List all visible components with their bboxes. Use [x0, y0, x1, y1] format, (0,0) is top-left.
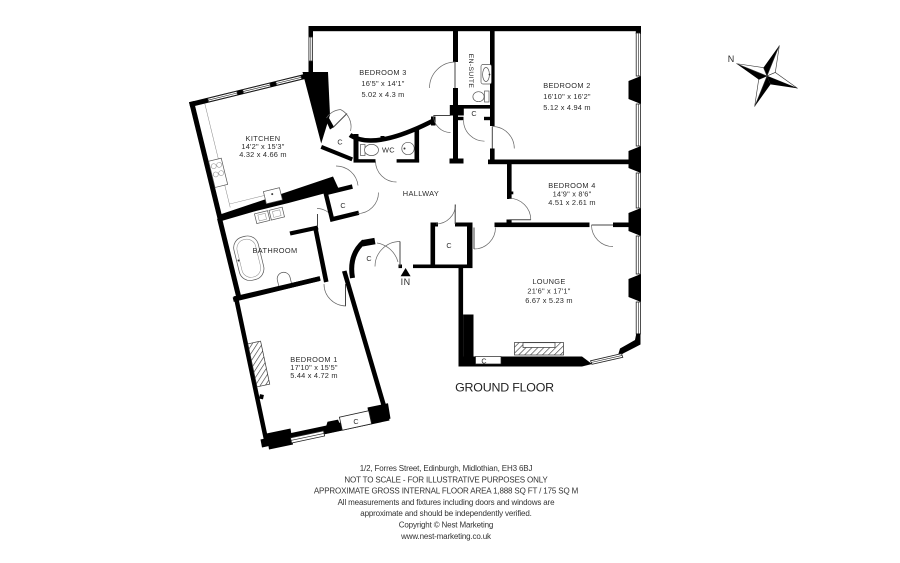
svg-text:www.nest-marketing.co.uk: www.nest-marketing.co.uk	[400, 532, 492, 541]
svg-text:WC: WC	[382, 146, 395, 155]
svg-text:NOT TO SCALE - FOR ILLUSTRATIV: NOT TO SCALE - FOR ILLUSTRATIVE PURPOSES…	[344, 476, 548, 485]
svg-text:EN-SUITE: EN-SUITE	[467, 54, 474, 89]
svg-text:C: C	[481, 357, 486, 366]
svg-text:5.02 x 4.3 m: 5.02 x 4.3 m	[361, 90, 404, 99]
svg-text:BEDROOM 3: BEDROOM 3	[359, 68, 407, 77]
svg-text:16'10" x 16'2": 16'10" x 16'2"	[543, 92, 591, 101]
svg-text:BEDROOM 2: BEDROOM 2	[543, 81, 591, 90]
svg-text:APPROXIMATE GROSS INTERNAL FLO: APPROXIMATE GROSS INTERNAL FLOOR AREA 1,…	[314, 487, 579, 496]
svg-text:C: C	[353, 417, 358, 426]
svg-text:C: C	[446, 241, 451, 250]
svg-text:BATHROOM: BATHROOM	[253, 246, 298, 255]
svg-text:LOUNGE: LOUNGE	[532, 277, 565, 286]
svg-text:5.44 x 4.72 m: 5.44 x 4.72 m	[290, 371, 337, 380]
svg-text:IN: IN	[401, 277, 411, 287]
svg-text:21'6" x 17'1": 21'6" x 17'1"	[527, 287, 570, 296]
svg-text:HALLWAY: HALLWAY	[403, 189, 439, 198]
svg-text:4.51 x 2.61 m: 4.51 x 2.61 m	[548, 198, 595, 207]
svg-text:1/2, Forres Street, Edinburgh,: 1/2, Forres Street, Edinburgh, Midlothia…	[360, 464, 533, 473]
svg-text:All measurements and fixtures: All measurements and fixtures including …	[338, 498, 555, 507]
svg-text:C: C	[337, 138, 342, 147]
svg-text:4.32 x 4.66 m: 4.32 x 4.66 m	[239, 150, 286, 159]
svg-text:16'5" x 14'1": 16'5" x 14'1"	[361, 79, 404, 88]
svg-text:N: N	[728, 54, 735, 64]
svg-text:C: C	[471, 109, 476, 118]
svg-text:C: C	[340, 201, 345, 210]
svg-text:6.67 x 5.23 m: 6.67 x 5.23 m	[525, 296, 572, 305]
svg-text:approximate and should be inde: approximate and should be independently …	[360, 509, 531, 518]
svg-text:GROUND FLOOR: GROUND FLOOR	[455, 381, 554, 395]
svg-text:Copyright © Nest Marketing: Copyright © Nest Marketing	[399, 520, 493, 529]
svg-text:5.12 x 4.94 m: 5.12 x 4.94 m	[543, 103, 590, 112]
svg-text:C: C	[366, 254, 371, 263]
